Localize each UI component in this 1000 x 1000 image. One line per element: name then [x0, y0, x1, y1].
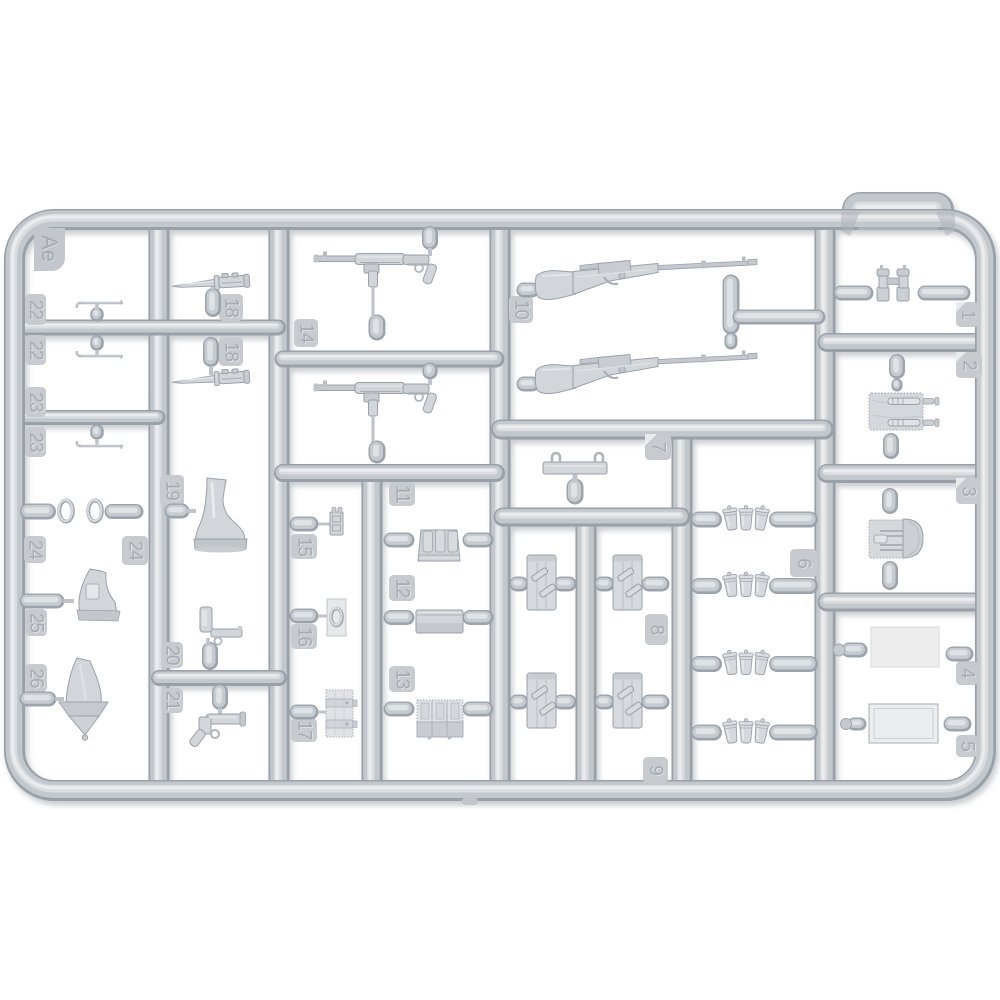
- svg-text:19: 19: [162, 481, 183, 501]
- svg-text:20: 20: [162, 645, 183, 665]
- svg-text:15: 15: [294, 537, 315, 557]
- svg-text:13: 13: [392, 669, 413, 689]
- svg-text:3: 3: [958, 486, 979, 496]
- svg-text:22: 22: [25, 300, 46, 320]
- svg-text:10: 10: [511, 300, 532, 320]
- svg-text:11: 11: [392, 485, 413, 503]
- svg-text:24: 24: [25, 540, 46, 561]
- svg-text:6: 6: [793, 558, 814, 568]
- svg-text:23: 23: [25, 392, 46, 412]
- svg-text:26: 26: [26, 668, 47, 688]
- svg-text:22: 22: [25, 340, 46, 360]
- svg-text:14: 14: [296, 323, 317, 344]
- svg-text:4: 4: [957, 668, 978, 679]
- svg-text:21: 21: [162, 691, 183, 711]
- svg-text:16: 16: [294, 627, 315, 647]
- svg-text:12: 12: [392, 578, 413, 598]
- svg-text:1: 1: [957, 310, 978, 320]
- svg-text:2: 2: [959, 360, 980, 370]
- svg-text:23: 23: [25, 432, 46, 452]
- svg-text:18: 18: [221, 298, 242, 318]
- svg-text:7: 7: [648, 442, 669, 452]
- svg-text:Ae: Ae: [37, 235, 62, 262]
- svg-text:9: 9: [645, 765, 666, 775]
- svg-text:5: 5: [957, 741, 978, 751]
- svg-text:8: 8: [646, 625, 667, 635]
- svg-text:17: 17: [294, 720, 315, 740]
- svg-text:24: 24: [125, 541, 146, 562]
- svg-text:25: 25: [26, 613, 47, 633]
- svg-text:18: 18: [221, 342, 242, 362]
